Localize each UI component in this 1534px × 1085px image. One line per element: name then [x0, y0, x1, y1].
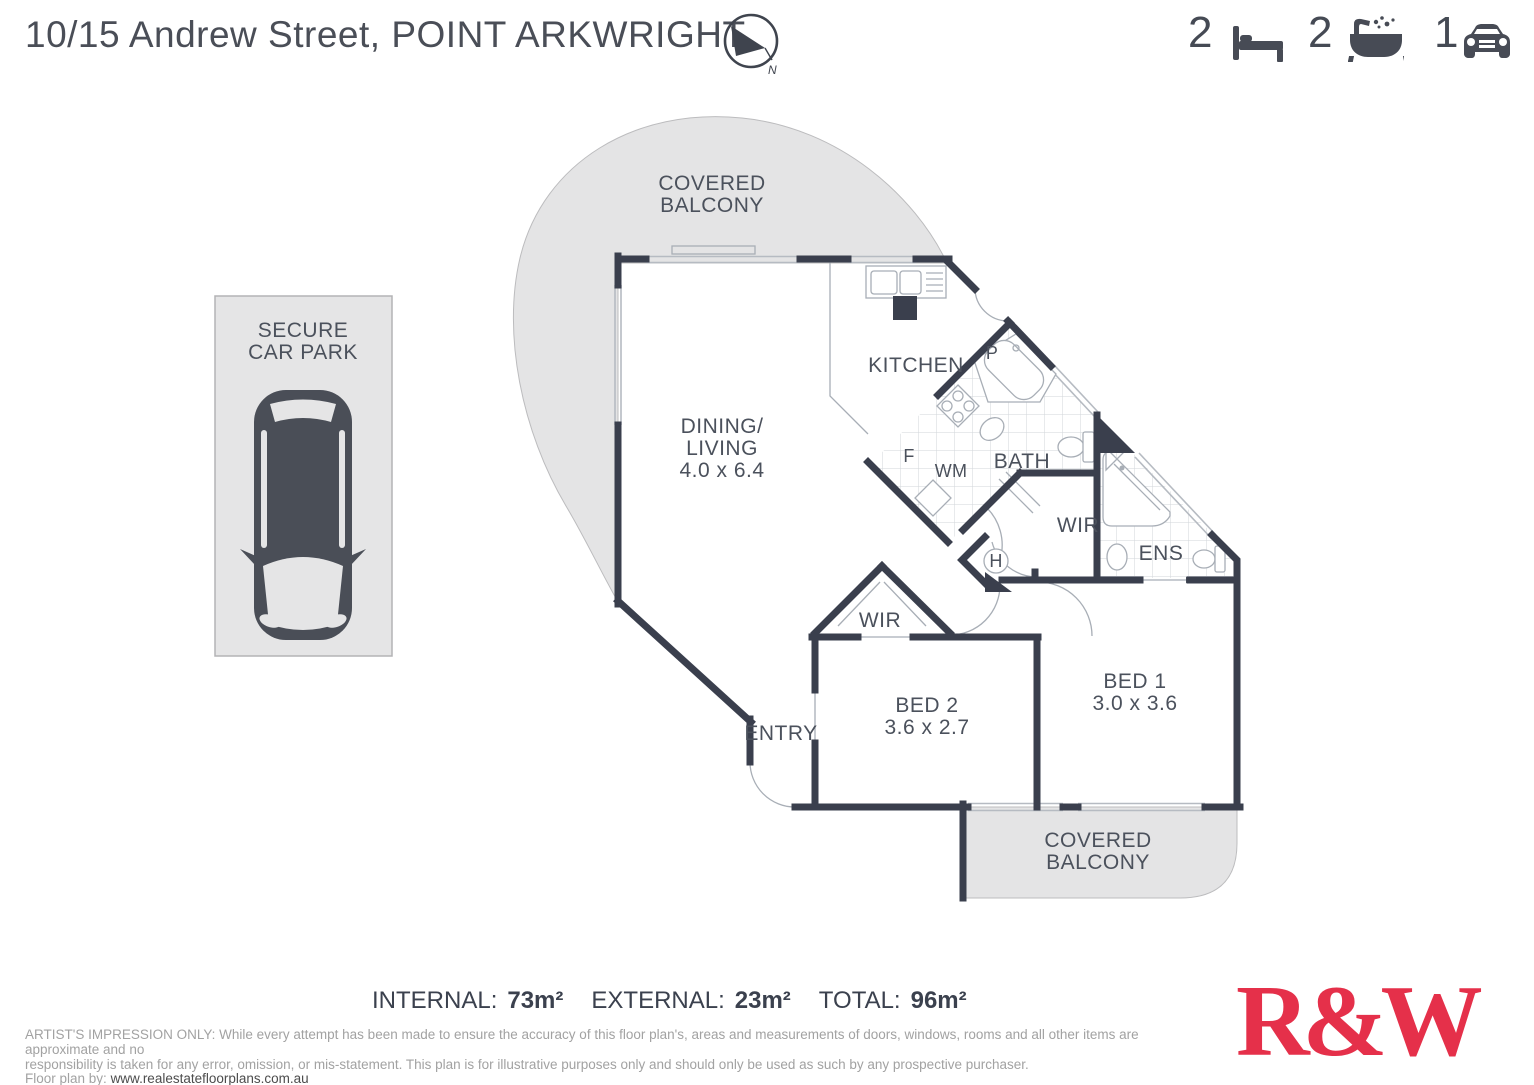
balcony-bottom-label-1: COVERED	[1044, 829, 1151, 852]
car-topview-icon	[240, 390, 366, 640]
balcony-bottom-label-2: BALCONY	[1046, 851, 1150, 874]
entry-label: ENTRY	[744, 722, 817, 745]
pantry-label: P	[986, 343, 998, 363]
dining-label-2: LIVING	[686, 437, 758, 460]
bath-label: BATH	[994, 450, 1050, 473]
carpark-label-1: SECURE	[258, 319, 349, 342]
area-summary: INTERNAL: 73m² EXTERNAL: 23m² TOTAL: 96m…	[372, 987, 967, 1015]
external-value: 23m²	[735, 987, 791, 1015]
floorplan-by-label: Floor plan by:	[25, 1071, 107, 1085]
internal-value: 73m²	[507, 987, 563, 1015]
bed1-dims: 3.0 x 3.6	[1092, 692, 1177, 715]
wir-bed2-label: WIR	[859, 609, 901, 632]
floorplan-by-url[interactable]: www.realestatefloorplans.com.au	[111, 1071, 309, 1085]
kitchen-bench	[830, 262, 868, 434]
ens-label: ENS	[1139, 542, 1184, 565]
disclaimer-line-3: Floor plan by: www.realestatefloorplans.…	[25, 1072, 1215, 1085]
bed2-label: BED 2	[895, 694, 958, 717]
balcony-top-label-1: COVERED	[658, 172, 765, 195]
opening-indicators	[812, 577, 1194, 748]
bed1-label: BED 1	[1103, 670, 1166, 693]
disclaimer: ARTIST'S IMPRESSION ONLY: While every at…	[25, 1028, 1215, 1085]
total-label: TOTAL:	[819, 987, 901, 1015]
floorplan-svg: COVERED BALCONY SECURE CAR PARK DINING/ …	[0, 0, 1534, 1085]
internal-area: INTERNAL: 73m²	[372, 987, 563, 1015]
external-area: EXTERNAL: 23m²	[591, 987, 790, 1015]
bed2-dims: 3.6 x 2.7	[884, 716, 969, 739]
disclaimer-line-1: ARTIST'S IMPRESSION ONLY: While every at…	[25, 1028, 1215, 1058]
kitchen-label: KITCHEN	[868, 354, 964, 377]
wir-ens-label: WIR	[1057, 514, 1099, 537]
total-value: 96m²	[911, 987, 967, 1015]
dining-label-1: DINING/	[681, 415, 764, 438]
rw-logo: R&W	[1236, 974, 1476, 1071]
dining-dims: 4.0 x 6.4	[679, 459, 764, 482]
floorplan-page: 10/15 Andrew Street, POINT ARKWRIGHT N 2…	[0, 0, 1534, 1085]
disclaimer-line-2: responsibility is taken for any error, o…	[25, 1058, 1215, 1073]
balcony-top-label-2: BALCONY	[660, 194, 764, 217]
ens-basin-icon	[1107, 544, 1127, 570]
hot-water-label: H	[989, 551, 1002, 571]
washing-machine-label: WM	[935, 461, 968, 481]
total-area: TOTAL: 96m²	[819, 987, 967, 1015]
external-label: EXTERNAL:	[591, 987, 724, 1015]
fridge-label: F	[903, 446, 914, 466]
internal-label: INTERNAL:	[372, 987, 497, 1015]
kitchen-sink-icon	[866, 266, 946, 298]
carpark-label-2: CAR PARK	[248, 341, 358, 364]
